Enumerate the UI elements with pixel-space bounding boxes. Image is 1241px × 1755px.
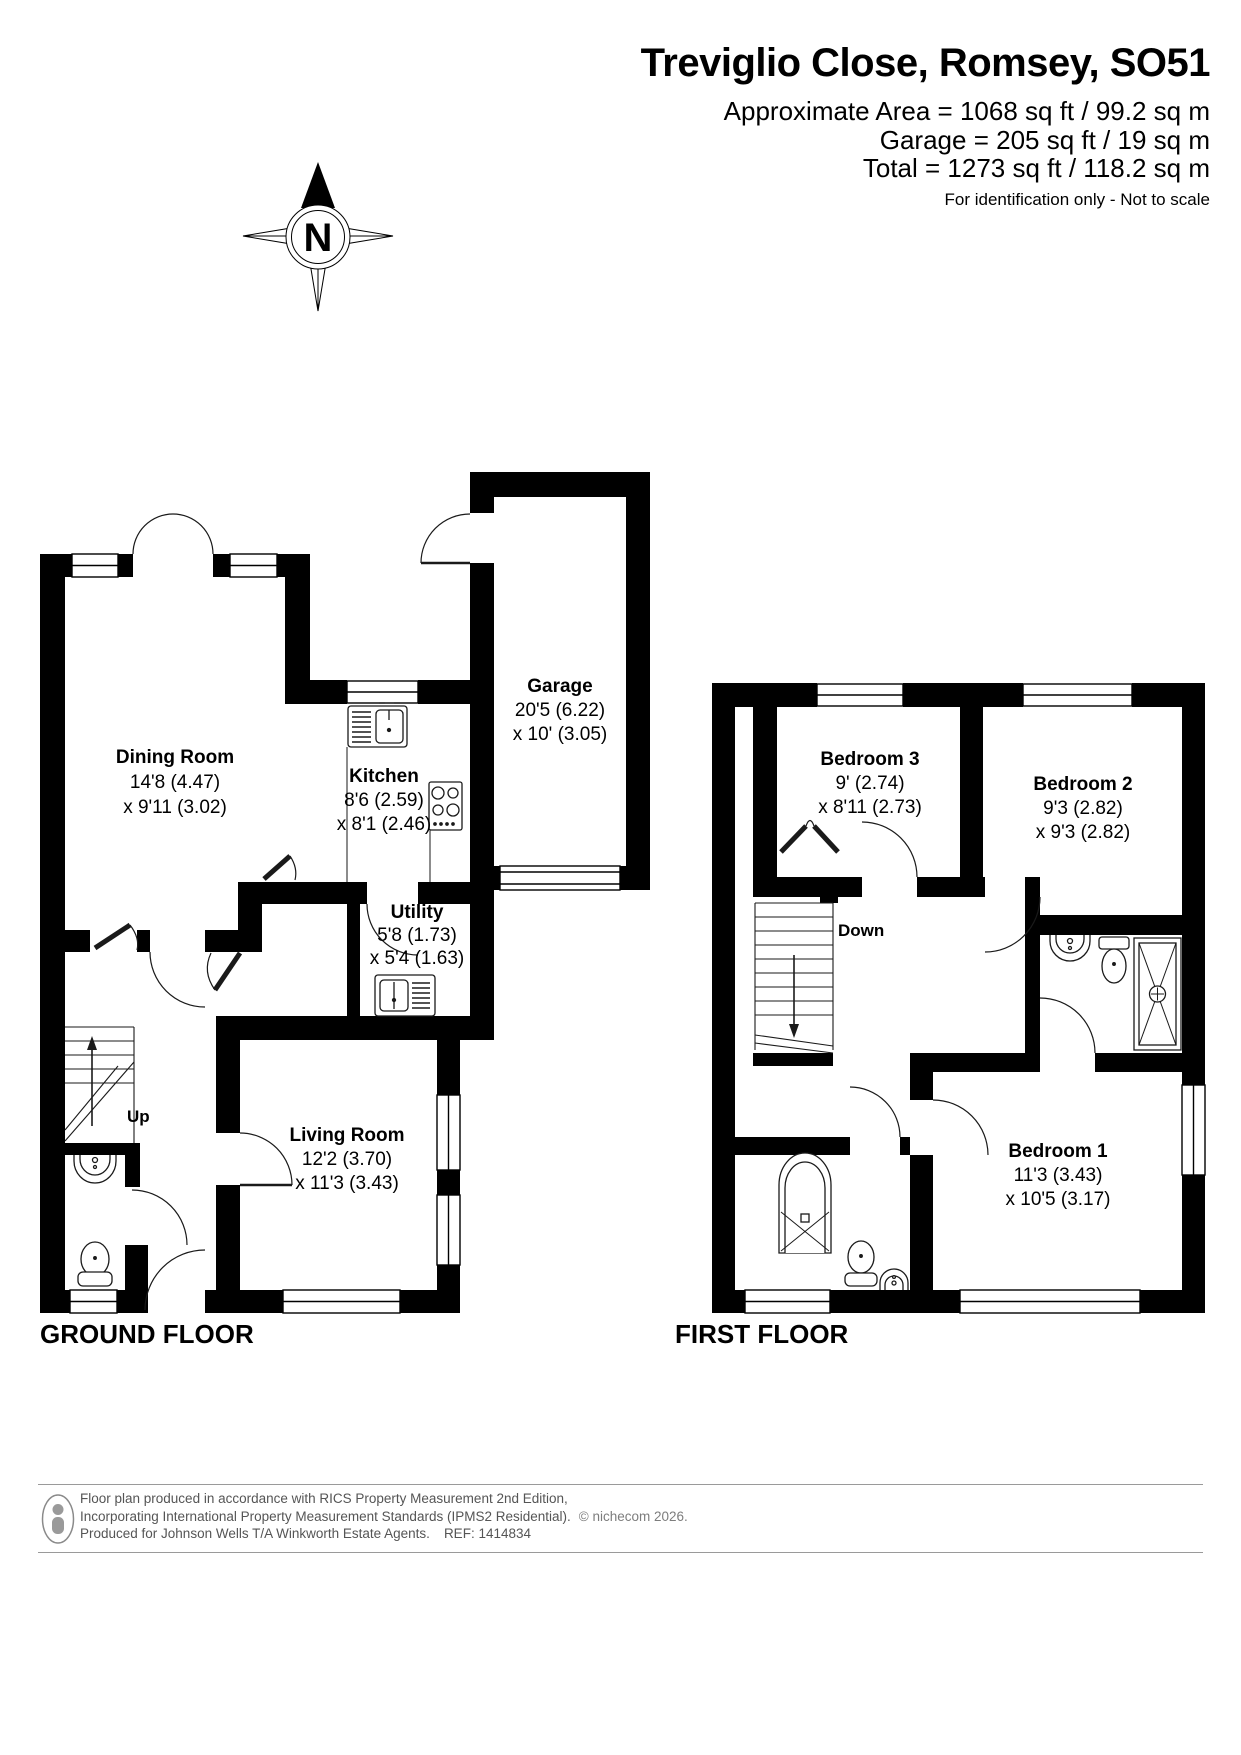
footer: Floor plan produced in accordance with R…: [38, 1484, 1203, 1553]
bedroom1-dim1: 11'3 (3.43): [1014, 1165, 1103, 1186]
window-icon: [960, 1290, 1140, 1313]
shower-icon: [1134, 938, 1181, 1050]
window-icon: [70, 1290, 117, 1313]
wardrobe-bifold-icon: [781, 821, 838, 853]
utility-dim1: 5'8 (1.73): [377, 925, 457, 946]
garage-dim1: 20'5 (6.22): [515, 700, 605, 721]
door-arc-icon: [421, 514, 470, 563]
window-icon: [347, 681, 418, 703]
floorplan-page: Treviglio Close, Romsey, SO51 Approximat…: [0, 0, 1241, 1755]
window-icon: [283, 1290, 400, 1313]
bath-icon: [779, 1153, 831, 1253]
stairs-down-label: Down: [838, 921, 884, 940]
window-icon: [817, 684, 903, 706]
first-floor-plan: Bedroom 3 9' (2.74) x 8'11 (2.73) Bedroo…: [675, 683, 1205, 1349]
kitchen-dim1: 8'6 (2.59): [344, 790, 424, 811]
bedroom2-dim1: 9'3 (2.82): [1043, 798, 1123, 819]
door-arc-icon: [145, 1250, 205, 1310]
garage-dim2: x 10' (3.05): [513, 724, 607, 745]
window-icon: [437, 1095, 460, 1170]
stairs-up-icon: [65, 1027, 134, 1143]
bedroom2-dim2: x 9'3 (2.82): [1036, 822, 1130, 843]
bedroom1-dim2: x 10'5 (3.17): [1005, 1189, 1110, 1210]
dining-room-label: Dining Room: [116, 747, 234, 768]
door-arc-icon: [850, 1087, 900, 1137]
footer-text: Floor plan produced in accordance with R…: [80, 1490, 688, 1543]
utility-label: Utility: [391, 902, 444, 923]
window-icon: [745, 1290, 830, 1313]
window-icon: [230, 554, 277, 577]
door-arc-icon: [862, 822, 917, 877]
french-door-icon: [133, 514, 173, 554]
first-floor-title: FIRST FLOOR: [675, 1319, 849, 1349]
doors-first: [781, 821, 1095, 1156]
hob-icon: [429, 782, 462, 830]
window-icon: [1023, 684, 1132, 706]
ref-number: REF: 1414834: [444, 1526, 531, 1541]
washing-machine-icon: [375, 975, 435, 1016]
ground-floor-plan: Dining Room 14'8 (4.47) x 9'11 (3.02) Ki…: [40, 472, 650, 1349]
window-icon: [72, 554, 118, 577]
door-arc-icon: [150, 952, 205, 1007]
ensuite-toilet-icon: [1099, 937, 1129, 983]
copyright-text: © nichecom 2026.: [579, 1509, 688, 1524]
stairs-up-label: Up: [127, 1107, 150, 1126]
bedroom3-dim1: 9' (2.74): [835, 773, 904, 794]
utility-dim2: x 5'4 (1.63): [370, 948, 464, 969]
garage-door-icon: [500, 866, 620, 890]
living-room-dim1: 12'2 (3.70): [302, 1149, 392, 1170]
ground-floor-title: GROUND FLOOR: [40, 1319, 254, 1349]
window-icon: [1182, 1085, 1205, 1175]
living-room-label: Living Room: [289, 1125, 404, 1146]
bathroom-toilet-icon: [845, 1241, 877, 1286]
bedroom1-label: Bedroom 1: [1008, 1141, 1108, 1162]
stairs-down-icon: [755, 903, 833, 1053]
compass-icon: N: [243, 162, 393, 311]
windows-ground: [70, 554, 620, 1313]
window-icon: [437, 1195, 460, 1265]
wc-basin-icon: [74, 1155, 116, 1183]
kitchen-dim2: x 8'1 (2.46): [337, 814, 431, 835]
dining-room-dim1: 14'8 (4.47): [130, 772, 220, 793]
dining-room-dim2: x 9'11 (3.02): [123, 797, 227, 818]
door-arc-icon: [132, 1190, 187, 1245]
footer-line-3: Produced for Johnson Wells T/A Winkworth…: [80, 1525, 688, 1543]
living-room-dim2: x 11'3 (3.43): [295, 1173, 399, 1194]
door-arc-icon: [933, 1100, 988, 1155]
footer-line-1: Floor plan produced in accordance with R…: [80, 1490, 688, 1508]
ensuite-basin-icon: [1050, 935, 1090, 961]
door-arc-icon: [240, 1133, 292, 1185]
kitchen-sink-icon: [348, 703, 407, 747]
bedroom3-label: Bedroom 3: [820, 749, 919, 770]
bathroom-basin-icon: [880, 1269, 908, 1290]
french-door-icon: [173, 514, 213, 554]
north-label: N: [304, 216, 333, 260]
wc-toilet-icon: [78, 1242, 112, 1286]
person-icon: [40, 1493, 76, 1550]
garage-label: Garage: [527, 676, 592, 697]
bedroom3-dim2: x 8'11 (2.73): [818, 797, 922, 818]
kitchen-label: Kitchen: [349, 766, 419, 787]
footer-line-2: Incorporating International Property Mea…: [80, 1508, 688, 1526]
bedroom2-label: Bedroom 2: [1033, 774, 1132, 795]
room-labels-ground: Dining Room 14'8 (4.47) x 9'11 (3.02) Ki…: [116, 676, 607, 1194]
door-arc-icon: [1040, 998, 1095, 1053]
